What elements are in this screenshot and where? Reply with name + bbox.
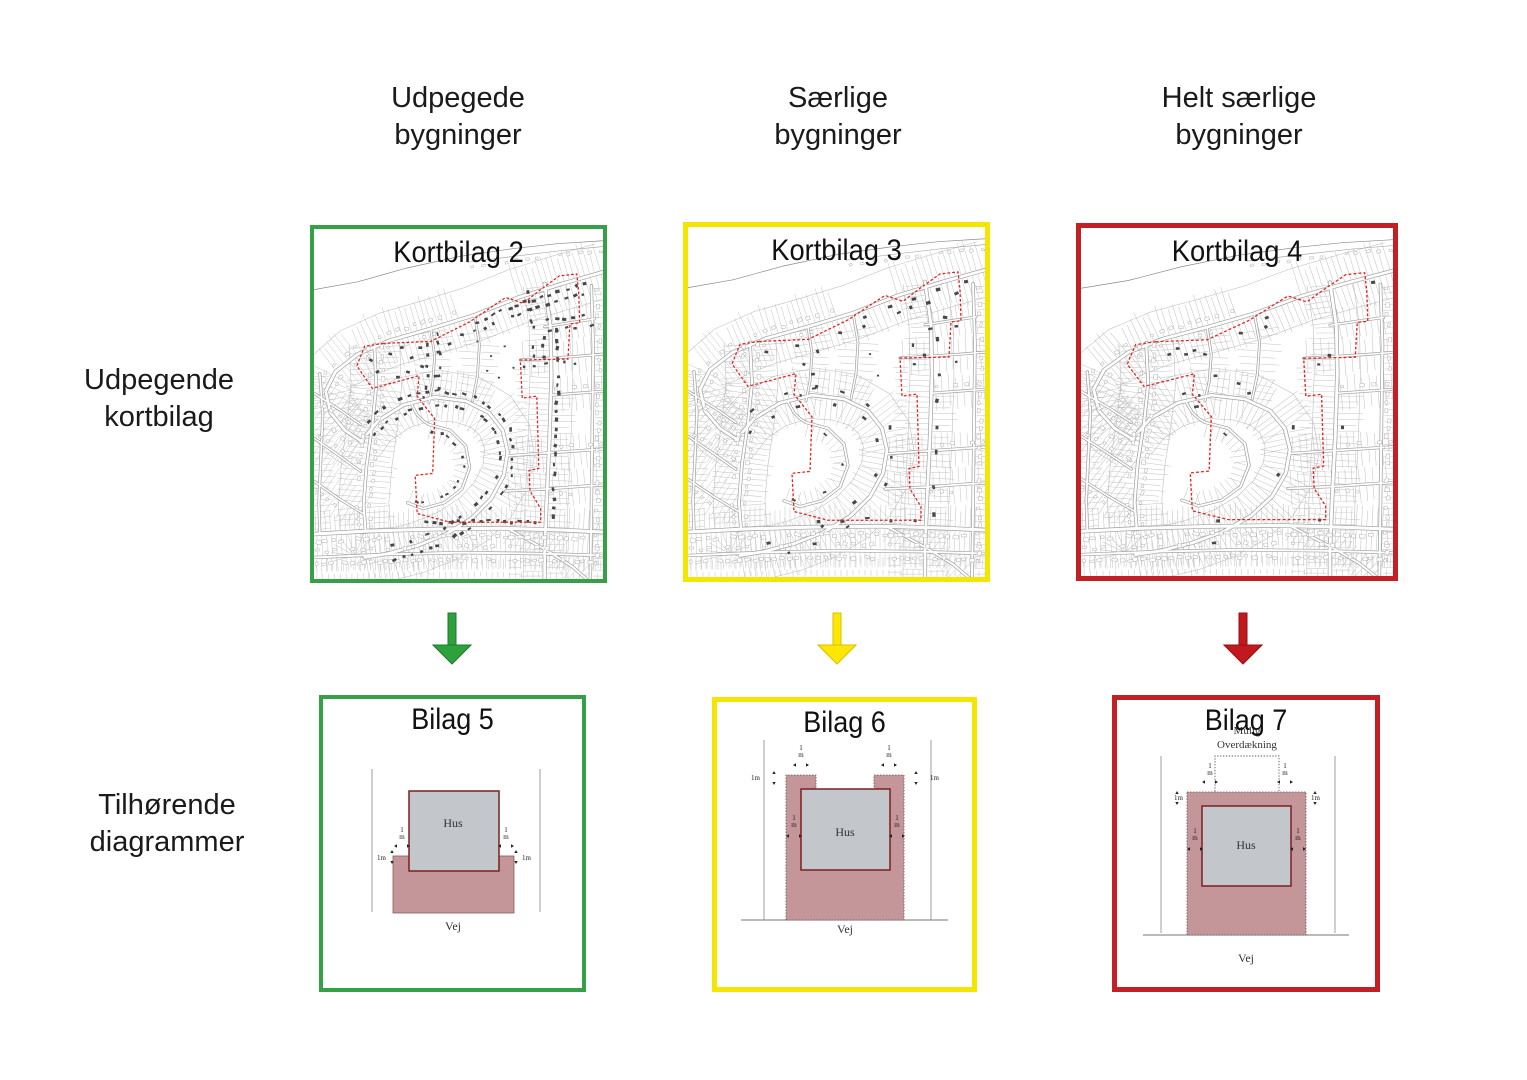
svg-text:Hus: Hus xyxy=(1236,838,1256,852)
svg-text:m: m xyxy=(1207,769,1213,777)
svg-text:m: m xyxy=(791,821,797,829)
svg-text:m: m xyxy=(798,751,804,759)
svg-text:1m: 1m xyxy=(377,854,387,862)
svg-text:m: m xyxy=(1282,769,1288,777)
svg-text:Hus: Hus xyxy=(835,825,855,839)
svg-text:Overdækning: Overdækning xyxy=(1217,739,1277,751)
svg-text:1m: 1m xyxy=(1311,794,1321,802)
svg-text:m: m xyxy=(503,833,509,841)
svg-text:1m: 1m xyxy=(522,854,532,862)
svg-text:m: m xyxy=(1192,834,1198,842)
svg-text:1m: 1m xyxy=(1174,794,1184,802)
svg-text:m: m xyxy=(1295,834,1301,842)
svg-text:1m: 1m xyxy=(751,774,761,782)
svg-text:m: m xyxy=(399,833,405,841)
svg-text:Vej: Vej xyxy=(1238,951,1254,965)
svg-text:m: m xyxy=(886,751,892,759)
svg-text:Hus: Hus xyxy=(443,816,463,830)
svg-text:1m: 1m xyxy=(930,774,940,782)
svg-text:m: m xyxy=(894,821,900,829)
svg-text:Vej: Vej xyxy=(837,922,853,936)
svg-text:Vej: Vej xyxy=(445,919,461,933)
